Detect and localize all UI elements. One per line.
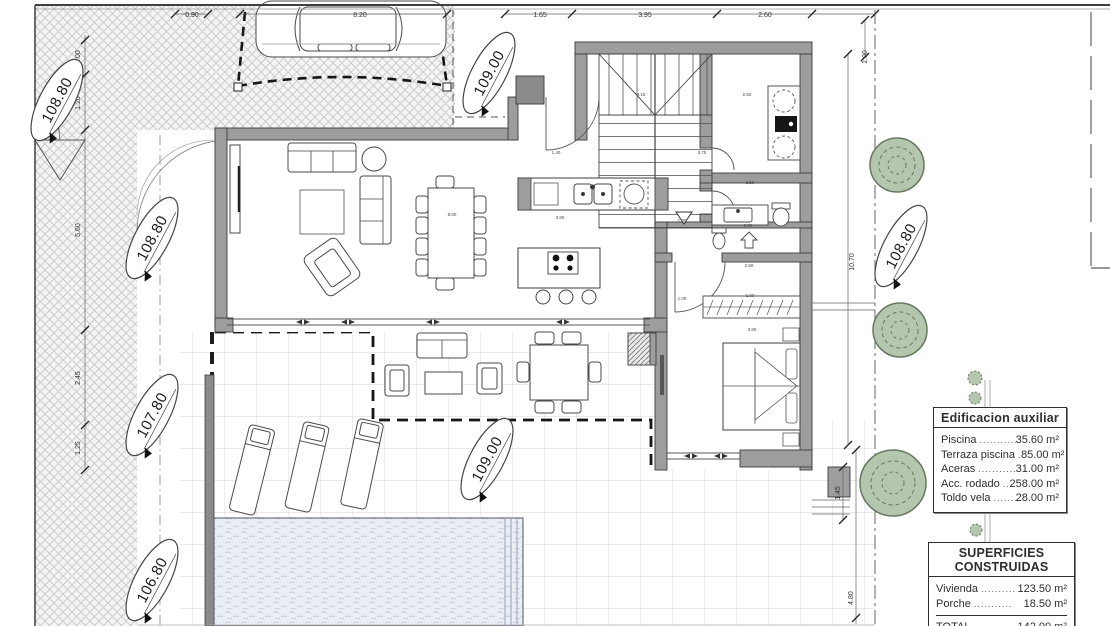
shrub-icon — [969, 392, 981, 404]
dining-chair — [416, 238, 428, 255]
wall-block-north — [575, 42, 812, 54]
floor-plan-drawing: 0.90 8.20 1.65 3.95 2.60 1.00 1.00 1.20 … — [0, 0, 1110, 626]
wc-toilet-bowl — [713, 233, 725, 249]
legend-superficies-title: SUPERFICIES CONSTRUIDAS — [929, 543, 1074, 577]
outdoor-coffee-table — [425, 372, 462, 394]
dining-chair — [436, 278, 454, 290]
dining-table — [428, 188, 474, 278]
porch-chair — [589, 362, 601, 382]
burner — [567, 255, 574, 262]
pool-water — [214, 518, 523, 626]
gate-post-left — [234, 83, 242, 91]
legend-value: 258.00 m² — [1009, 477, 1059, 492]
dining-chair — [474, 217, 486, 234]
legend-label: Porche — [936, 597, 971, 612]
dining-chair — [474, 259, 486, 276]
legend-total-row: TOTAL ........... 142.00 m² — [936, 615, 1067, 626]
dim-label: 2.00 — [744, 223, 753, 228]
legend-value: 31.00 m² — [1016, 462, 1059, 477]
dim-label: 2.50 — [745, 263, 754, 268]
legend-dots: ........... — [971, 597, 1024, 612]
porch-chair — [562, 332, 581, 344]
wc-toilet-tank — [712, 228, 726, 233]
burner — [553, 265, 558, 270]
dim-label: 1.00 — [746, 293, 755, 298]
dim-label: 8.20 — [353, 12, 367, 19]
wall-stair-west — [575, 54, 587, 140]
wall-bedroom-north-b — [722, 253, 812, 262]
legend-label: Piscina — [941, 433, 976, 448]
appliance-dial — [789, 122, 793, 126]
burner — [553, 255, 560, 262]
dining-chair — [416, 196, 428, 213]
legend-dots: ........... — [991, 491, 1016, 506]
counter-end-west — [518, 178, 531, 210]
tree — [870, 138, 924, 192]
wall-bedroom-north-a — [655, 253, 672, 262]
wall-utility-south — [712, 173, 812, 183]
toilet-bowl — [773, 208, 789, 226]
dim-label: 2.50 — [746, 180, 755, 185]
dim-label: 0.90 — [185, 12, 199, 19]
wall-bedroom-south — [740, 450, 812, 467]
porch-chair — [535, 401, 554, 413]
wall-living-west — [215, 128, 227, 332]
dim-label: 3.75 — [698, 150, 707, 155]
dim-label: 2.50 — [743, 92, 752, 97]
dim-label: 2.45 — [75, 371, 82, 385]
car-window-right — [356, 44, 390, 51]
pillow — [786, 349, 797, 379]
legend-dots: ............ — [976, 433, 1015, 448]
legend-label: Aceras — [941, 462, 975, 477]
legend-label: Vivienda — [936, 582, 978, 597]
dim-label: 4.80 — [848, 591, 855, 605]
dim-label: 1.65 — [533, 12, 547, 19]
legend-dots: ........... — [970, 620, 1017, 626]
legend-row: Porche ........... 18.50 m² — [936, 597, 1067, 612]
legend-value: 123.50 m² — [1017, 582, 1067, 597]
bbq-side — [650, 333, 656, 365]
porch-dining-table — [530, 345, 588, 400]
dining-chair — [436, 176, 454, 188]
pillow — [786, 393, 797, 423]
dim-label: 8.00 — [448, 212, 457, 217]
sink-drain — [581, 192, 584, 195]
dining-chair — [416, 217, 428, 234]
legend-total-label: TOTAL — [936, 620, 970, 626]
shrub-icon — [968, 371, 982, 385]
sink-drain — [601, 192, 604, 195]
bbq — [628, 333, 650, 365]
dim-label: 1.00 — [862, 50, 869, 64]
legend-row: Acc. rodado ......... 258.00 m² — [941, 477, 1059, 492]
dim-label: 3.80 — [556, 215, 565, 220]
dining-chair — [416, 259, 428, 276]
burner — [567, 265, 572, 270]
legend-value: 85.00 m² — [1021, 448, 1064, 463]
dim-label: 1.45 — [835, 486, 842, 500]
gate-post-right — [443, 83, 451, 91]
utility-room — [768, 86, 800, 160]
porch-chair — [562, 401, 581, 413]
legend-row: Toldo vela ........... 28.00 m² — [941, 491, 1059, 506]
dim-label: 2.60 — [758, 12, 772, 19]
east-walkway — [812, 332, 875, 420]
stool — [536, 290, 550, 304]
porch-chair — [517, 362, 529, 382]
island-stools — [536, 290, 596, 304]
legend-label: Terraza piscina — [941, 448, 1015, 463]
shrub-icon — [970, 524, 982, 536]
legend-value: 35.60 m² — [1016, 433, 1059, 448]
nightstand — [783, 433, 799, 446]
kitchen-cabinet — [534, 183, 558, 205]
dim-label: 5.60 — [75, 223, 82, 237]
sun-loungers — [229, 418, 384, 516]
legend-dots: ........... — [978, 582, 1017, 597]
legend-value: 28.00 m² — [1016, 491, 1059, 506]
dim-label: 3.80 — [748, 327, 757, 332]
stair-flight-left — [599, 115, 655, 228]
counter-end-east — [655, 178, 668, 210]
legend-row: Vivienda ........... 123.50 m² — [936, 582, 1067, 597]
legend-auxiliar-title: Edificacion auxiliar — [934, 408, 1066, 428]
outdoor-fixture — [660, 355, 664, 395]
sofa-top — [288, 143, 356, 172]
legend-dots: ......... — [1000, 477, 1010, 492]
porch-chair — [535, 332, 554, 344]
stair-flight-right — [655, 115, 712, 228]
dim-label: 3.95 — [638, 12, 652, 19]
floor-plan-page: 0.90 8.20 1.65 3.95 2.60 1.00 1.00 1.20 … — [0, 0, 1110, 626]
round-side-table — [362, 147, 386, 171]
legend-superficies-construidas: SUPERFICIES CONSTRUIDAS Vivienda .......… — [928, 542, 1075, 626]
hob — [548, 252, 578, 274]
tree — [873, 303, 927, 357]
legend-row: Terraza piscina ...... 85.00 m² — [941, 448, 1059, 463]
stool — [559, 290, 573, 304]
car-window-left — [318, 44, 352, 51]
legend-dots: ............ — [975, 462, 1015, 477]
pool-west-wall — [205, 375, 214, 626]
sink-tap — [591, 185, 595, 189]
stool — [582, 290, 596, 304]
legend-row: Piscina ............ 35.60 m² — [941, 433, 1059, 448]
dim-label: 3.15 — [637, 92, 646, 97]
vanity-tap — [737, 210, 740, 213]
utility-appliance — [775, 116, 797, 132]
dim-label: 1.00 — [678, 296, 687, 301]
nightstand — [783, 328, 799, 341]
dining-chair — [474, 196, 486, 213]
dim-label: 1.00 — [678, 218, 687, 223]
legend-value: 18.50 m² — [1024, 597, 1067, 612]
sofa-side — [360, 176, 391, 244]
legend-label: Acc. rodado — [941, 477, 1000, 492]
dim-label: 10.70 — [849, 253, 856, 271]
legend-edificacion-auxiliar: Edificacion auxiliar Piscina ...........… — [933, 407, 1067, 513]
wall-living-north — [215, 128, 518, 140]
dim-label: 1.40 — [552, 150, 561, 155]
entry-column — [516, 76, 544, 104]
legend-total-value: 142.00 m² — [1017, 620, 1067, 626]
legend-label: Toldo vela — [941, 491, 991, 506]
tree — [860, 450, 926, 516]
dim-label: 1.25 — [75, 441, 82, 455]
legend-row: Aceras ............ 31.00 m² — [941, 462, 1059, 477]
dining-chair — [474, 238, 486, 255]
